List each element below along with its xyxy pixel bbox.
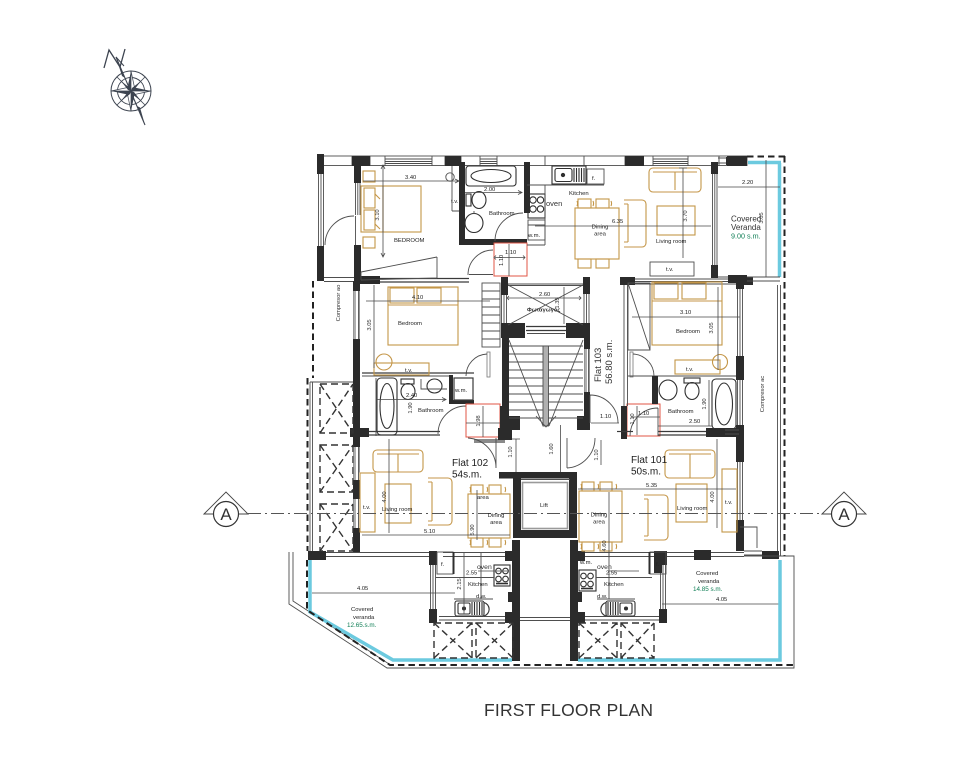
svg-text:Bathroom: Bathroom — [668, 409, 694, 415]
svg-text:4.05: 4.05 — [357, 586, 368, 592]
svg-text:Kitchen: Kitchen — [468, 582, 488, 588]
svg-text:area: area — [593, 520, 606, 526]
svg-text:oven: oven — [477, 564, 492, 571]
svg-text:5.90: 5.90 — [470, 524, 476, 535]
svg-text:t.v.: t.v. — [451, 199, 459, 205]
svg-text:56.80 s.m.: 56.80 s.m. — [604, 340, 615, 384]
svg-text:f.: f. — [656, 562, 660, 568]
svg-text:1.10: 1.10 — [499, 255, 505, 266]
svg-text:1.98: 1.98 — [476, 415, 482, 426]
svg-text:9.00 s.m.: 9.00 s.m. — [731, 232, 761, 241]
svg-text:Covered: Covered — [696, 571, 718, 577]
svg-text:Compresor ao: Compresor ao — [336, 285, 342, 322]
svg-text:50s.m.: 50s.m. — [631, 467, 661, 478]
svg-text:veranda: veranda — [698, 579, 720, 585]
svg-text:12.65.s.m.: 12.65.s.m. — [347, 622, 377, 629]
svg-text:Dining: Dining — [592, 225, 609, 231]
svg-text:3.40: 3.40 — [405, 175, 416, 181]
svg-text:2.55: 2.55 — [466, 571, 477, 577]
svg-text:Dining: Dining — [488, 513, 505, 519]
svg-text:Bathroom: Bathroom — [418, 408, 444, 414]
svg-text:Kitchen: Kitchen — [604, 582, 624, 588]
svg-text:Living room: Living room — [677, 506, 708, 512]
svg-text:Flat 101: Flat 101 — [631, 455, 668, 466]
svg-text:4.10: 4.10 — [412, 295, 423, 301]
svg-text:Flat 103: Flat 103 — [593, 348, 604, 382]
svg-text:t.v.: t.v. — [666, 267, 674, 273]
svg-text:Living room: Living room — [382, 507, 413, 513]
svg-text:f.: f. — [592, 176, 596, 182]
svg-text:d.w.: d.w. — [597, 594, 608, 600]
svg-text:w.m.: w.m. — [579, 560, 592, 566]
svg-text:oven: oven — [546, 199, 562, 208]
svg-text:3.10: 3.10 — [375, 209, 381, 220]
svg-text:4.05: 4.05 — [716, 597, 727, 603]
svg-text:Kitchen: Kitchen — [569, 191, 589, 197]
svg-text:1.60: 1.60 — [549, 443, 555, 454]
svg-text:4.00: 4.00 — [710, 491, 716, 502]
svg-text:54s.m.: 54s.m. — [452, 470, 482, 481]
svg-text:3.70: 3.70 — [683, 210, 689, 221]
svg-text:d.w.: d.w. — [476, 594, 487, 600]
svg-text:Lift: Lift — [540, 503, 548, 509]
svg-text:Bedroom: Bedroom — [676, 329, 700, 335]
svg-text:6.35: 6.35 — [612, 219, 623, 225]
svg-text:f.: f. — [441, 562, 445, 568]
svg-text:2.20: 2.20 — [742, 180, 753, 186]
svg-text:A: A — [220, 505, 232, 524]
svg-text:3.10: 3.10 — [680, 310, 691, 316]
svg-text:veranda: veranda — [353, 615, 375, 621]
svg-text:Φωταγωγός: Φωταγωγός — [527, 308, 560, 314]
svg-text:1.10: 1.10 — [638, 411, 649, 417]
svg-text:Bathroom: Bathroom — [489, 211, 515, 217]
svg-text:3.05: 3.05 — [709, 322, 715, 333]
svg-text:1.10: 1.10 — [630, 413, 636, 424]
svg-text:Compresor ac: Compresor ac — [760, 376, 766, 413]
svg-text:t.v.: t.v. — [725, 500, 733, 506]
svg-text:2.55: 2.55 — [606, 571, 617, 577]
svg-text:1.10: 1.10 — [508, 446, 514, 457]
svg-text:14.85 s.m.: 14.85 s.m. — [693, 586, 723, 593]
svg-text:1.10: 1.10 — [600, 414, 611, 420]
svg-text:2.40: 2.40 — [406, 393, 417, 399]
svg-text:4.60: 4.60 — [602, 540, 608, 551]
svg-text:w.m.: w.m. — [527, 233, 540, 239]
svg-text:t.v.: t.v. — [405, 368, 413, 374]
svg-text:Bedroom: Bedroom — [398, 321, 422, 327]
svg-text:oven: oven — [597, 564, 612, 571]
svg-text:2.60: 2.60 — [539, 292, 550, 298]
svg-text:w.m.: w.m. — [454, 388, 467, 394]
svg-text:1.10: 1.10 — [505, 250, 516, 256]
svg-text:Living room: Living room — [656, 239, 687, 245]
svg-text:2.50: 2.50 — [689, 419, 700, 425]
svg-text:5.10: 5.10 — [424, 529, 435, 535]
svg-text:t.v.: t.v. — [363, 505, 371, 511]
svg-text:Dining: Dining — [591, 513, 608, 519]
svg-text:Flat 102: Flat 102 — [452, 458, 489, 469]
svg-text:1.10: 1.10 — [594, 449, 600, 460]
svg-text:5.35: 5.35 — [646, 483, 657, 489]
svg-text:3.05: 3.05 — [367, 319, 373, 330]
svg-text:4.00: 4.00 — [382, 491, 388, 502]
svg-text:A: A — [838, 505, 850, 524]
svg-text:area: area — [594, 232, 607, 238]
svg-text:Covered: Covered — [351, 607, 373, 613]
svg-text:1.90: 1.90 — [408, 402, 414, 413]
svg-text:t.v.: t.v. — [686, 367, 694, 373]
svg-text:2.15: 2.15 — [457, 578, 463, 589]
svg-text:2.00: 2.00 — [484, 187, 495, 193]
svg-text:1.90: 1.90 — [702, 398, 708, 409]
svg-text:BEDROOM: BEDROOM — [394, 238, 425, 244]
svg-text:area: area — [490, 520, 503, 526]
svg-text:FIRST FLOOR PLAN: FIRST FLOOR PLAN — [484, 700, 653, 720]
svg-text:area: area — [477, 495, 490, 501]
